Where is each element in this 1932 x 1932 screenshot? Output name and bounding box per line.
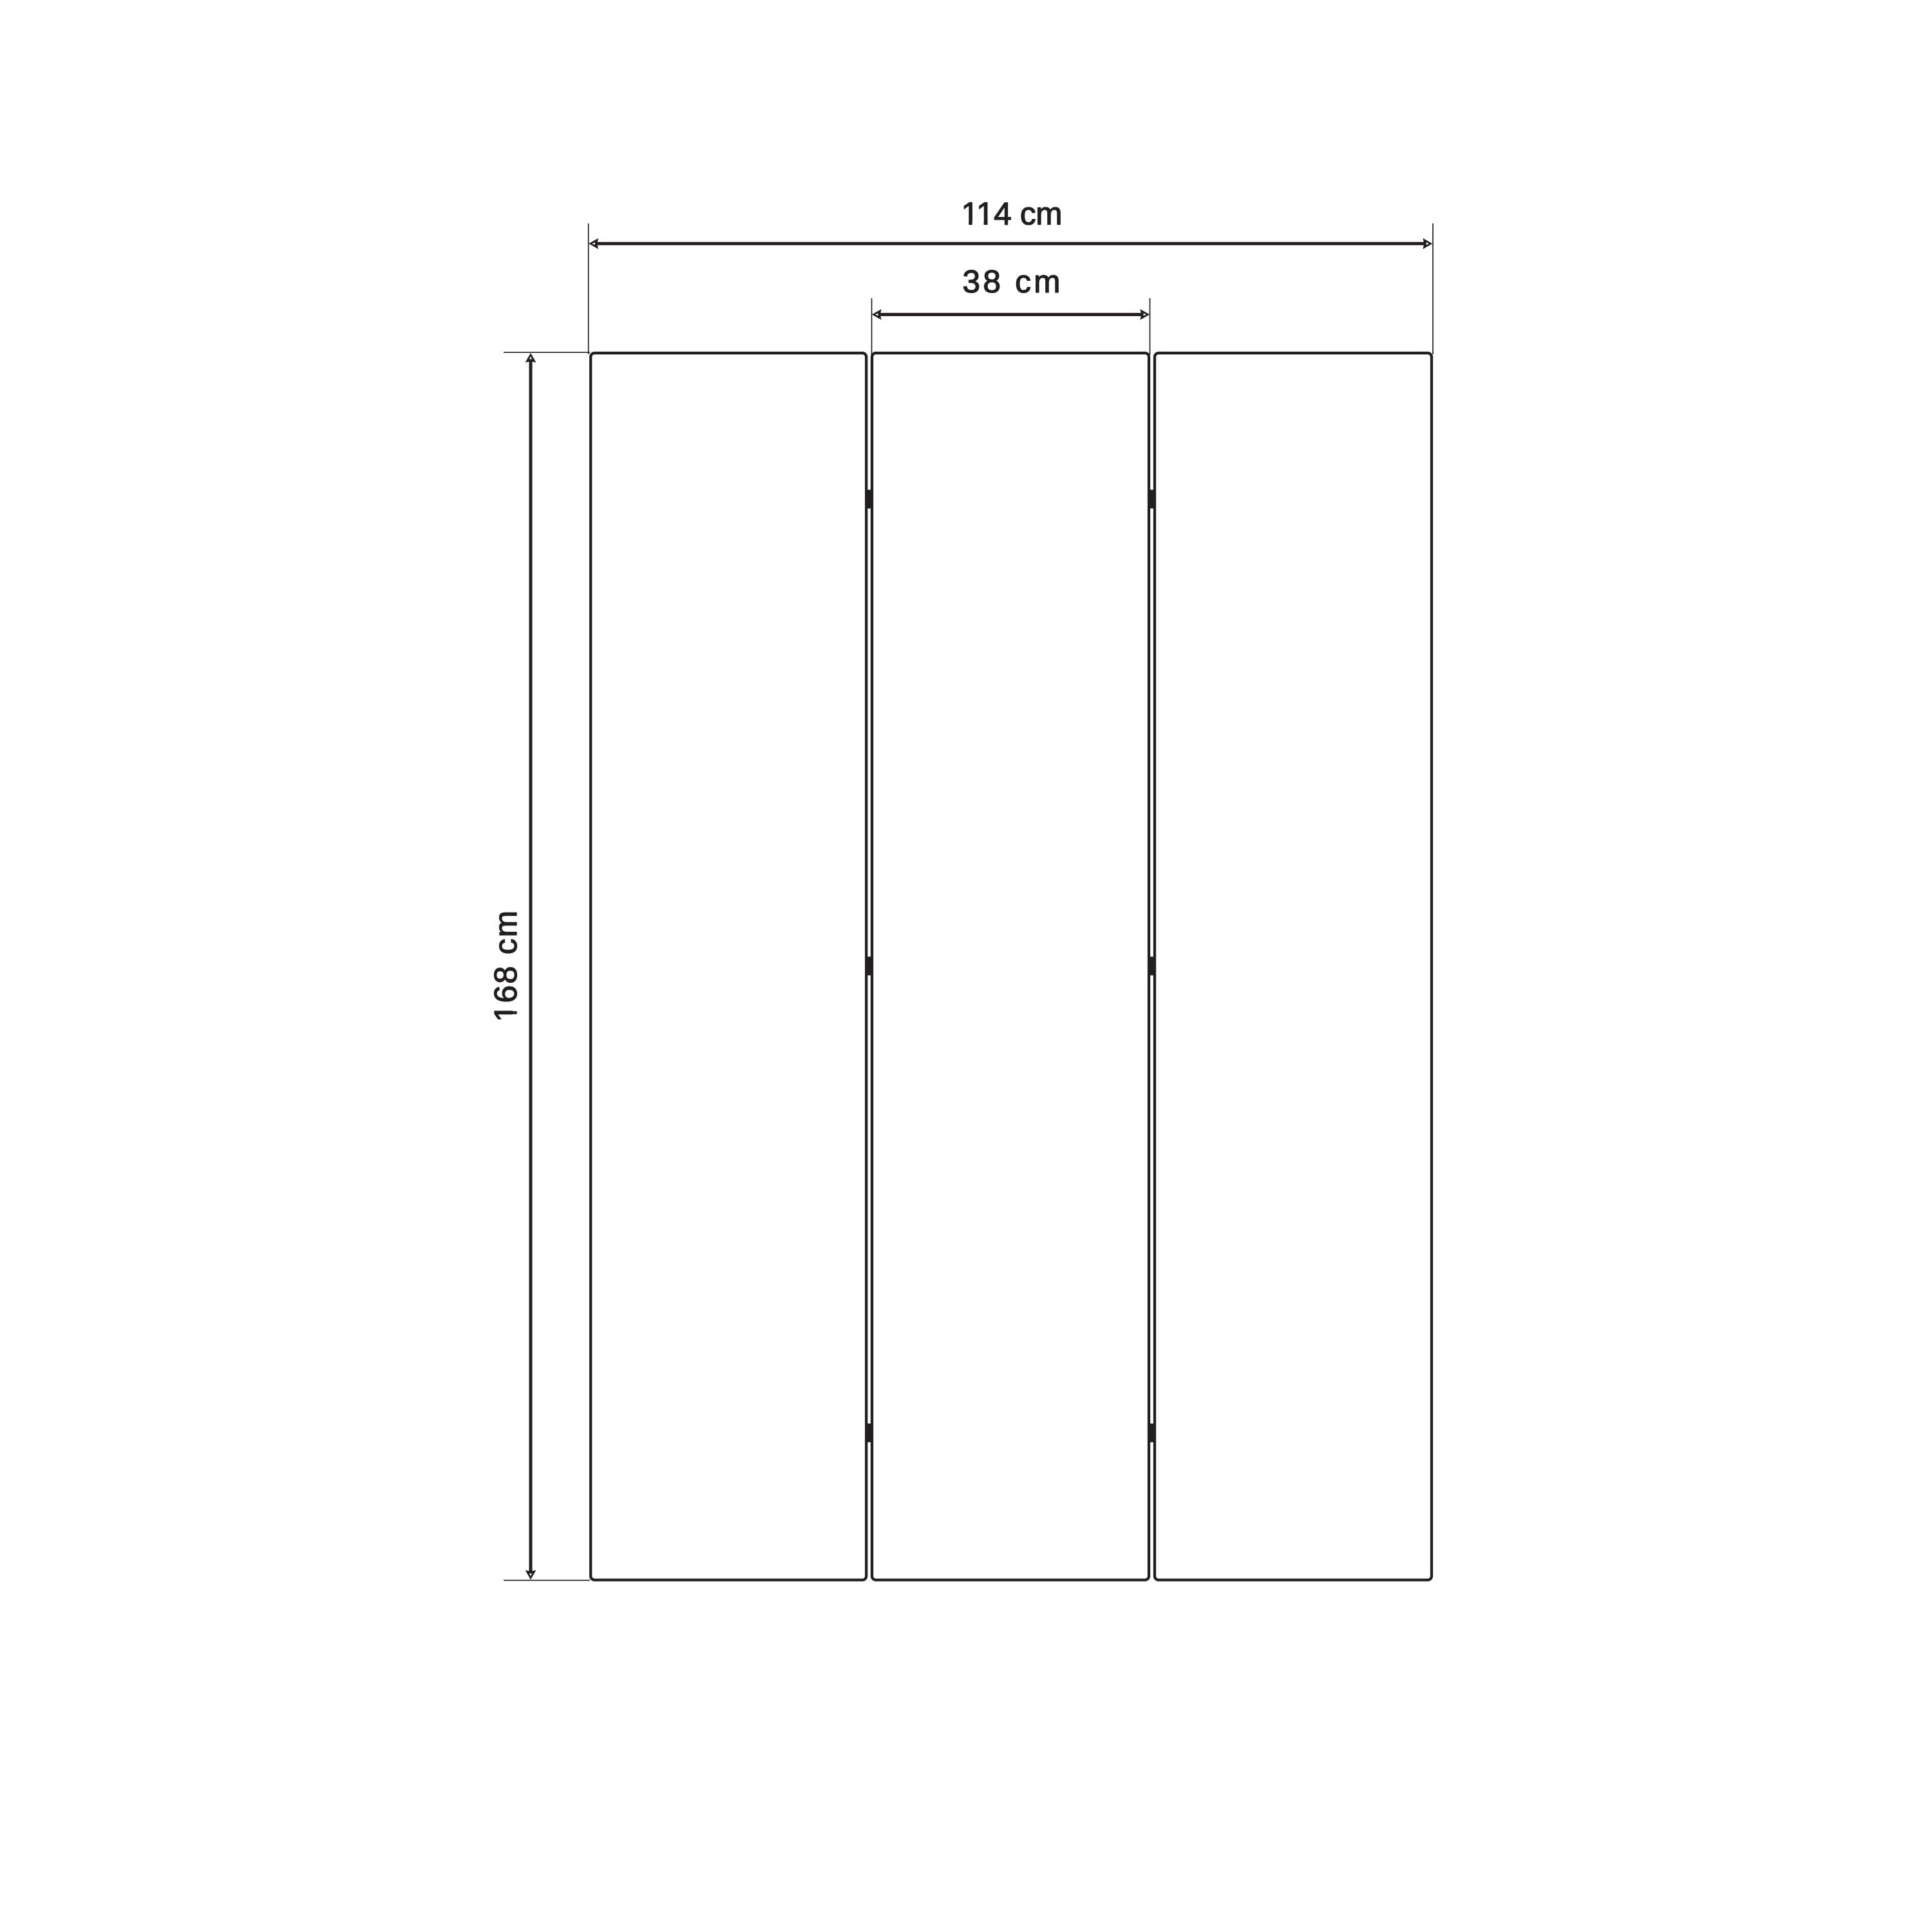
svg-text:168 cm: 168 cm (488, 911, 524, 1022)
svg-text:114 cm: 114 cm (961, 196, 1063, 232)
svg-text:38 cm: 38 cm (963, 264, 1061, 299)
